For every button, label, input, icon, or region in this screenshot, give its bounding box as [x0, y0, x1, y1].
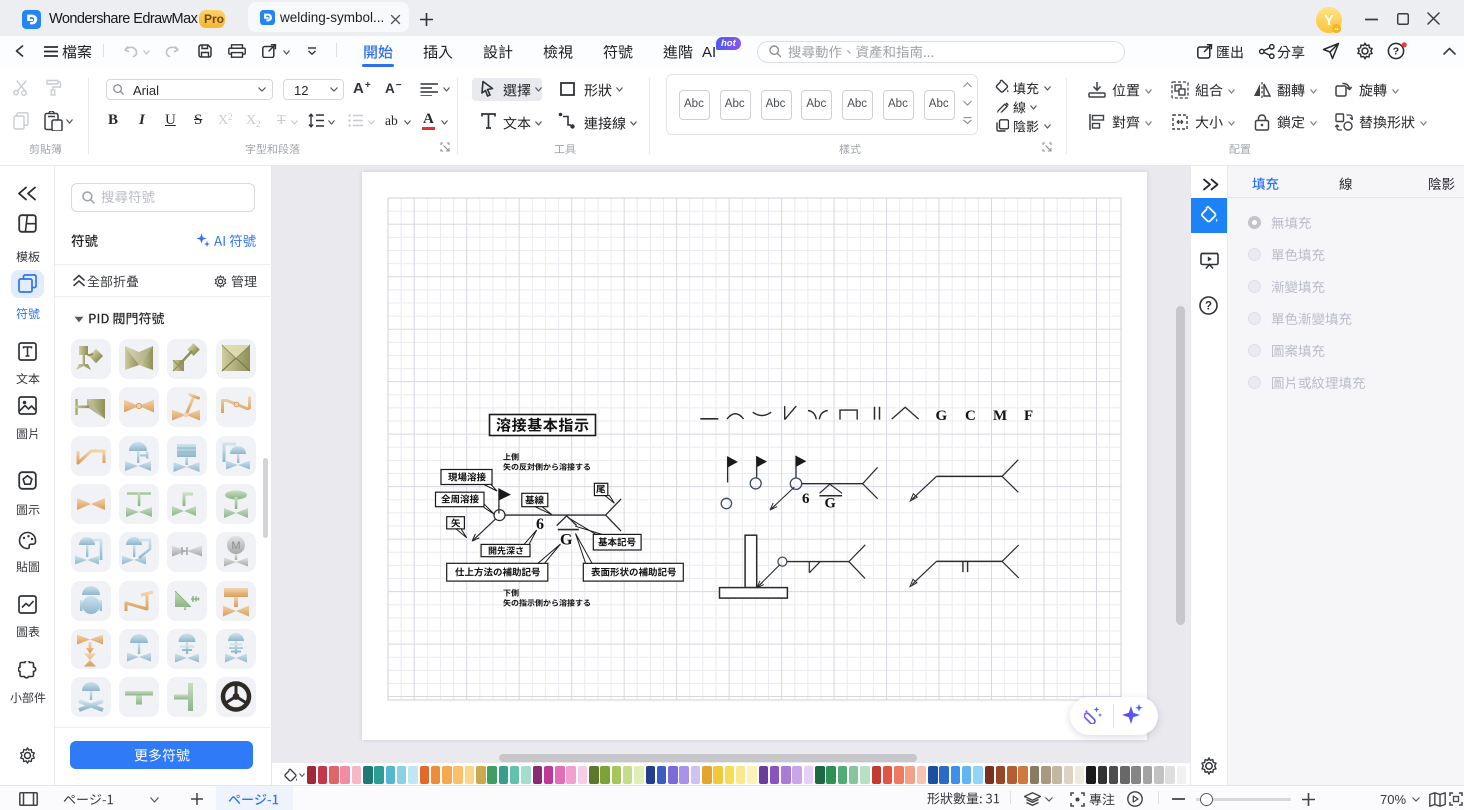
svg-text:?: ?	[1393, 46, 1399, 58]
svg-text:G: G	[825, 496, 836, 512]
svg-text:G: G	[936, 408, 948, 424]
svg-text:M: M	[231, 540, 240, 552]
svg-text:G: G	[560, 532, 573, 549]
svg-text:C: C	[965, 408, 976, 424]
svg-text:6: 6	[536, 516, 544, 533]
svg-text:F: F	[1024, 408, 1033, 424]
svg-text:6: 6	[802, 491, 810, 507]
svg-text:?: ?	[1205, 301, 1212, 313]
svg-text:M: M	[993, 408, 1007, 424]
